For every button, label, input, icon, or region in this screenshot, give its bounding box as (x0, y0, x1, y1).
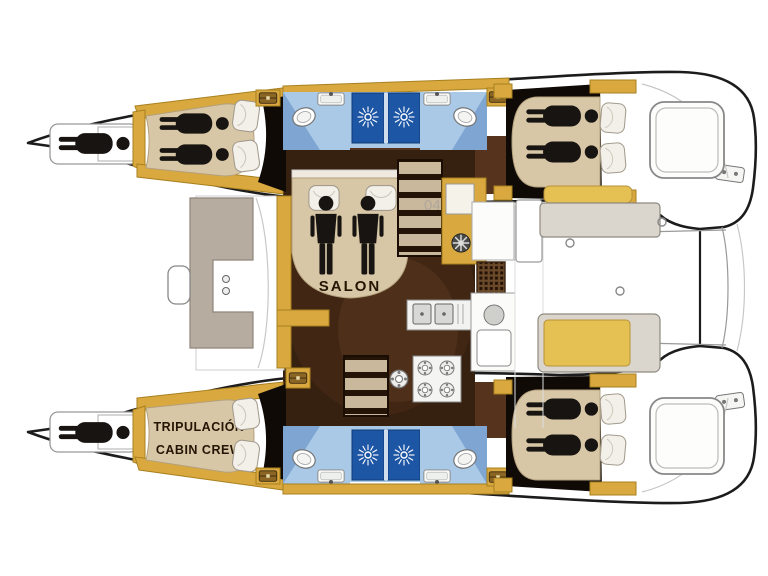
bench-cushion-fwd (544, 186, 632, 203)
galley-counter-top (446, 184, 474, 214)
deck-ring (566, 239, 574, 247)
crew-cabin-label-line2: CABIN CREW (156, 443, 242, 457)
watermark: 04 (424, 197, 441, 214)
bench-cushion-aft (544, 320, 630, 366)
companionway-stairs-port (344, 356, 388, 416)
shower-divider (384, 93, 388, 143)
cabin-trim (494, 380, 512, 394)
fridge (477, 330, 511, 366)
bath-trim (283, 484, 509, 494)
cabin-trim (133, 110, 145, 172)
burner-icon (418, 383, 432, 397)
cabin-trim (494, 186, 512, 200)
cabin-trim (494, 478, 512, 492)
bow-berth-starboard (50, 124, 138, 164)
galley-furniture (472, 202, 514, 260)
salon-label: SALON (319, 278, 382, 295)
cabin-trim (590, 80, 636, 93)
transom-line (722, 227, 728, 348)
stern-hatch (650, 102, 724, 178)
shower-left (352, 430, 384, 480)
foredeck-cockpit (168, 196, 284, 370)
burner-icon (440, 383, 454, 397)
catamaran-floorplan: TRIPULACIÓN CABIN CREW (0, 0, 768, 576)
cockpit (538, 186, 666, 372)
chest-locker-icon (259, 471, 277, 482)
faucet (329, 480, 333, 484)
pillow (232, 139, 261, 172)
burner-icon (418, 361, 432, 375)
cockpit-bench-fwd (540, 203, 660, 237)
faucet (329, 92, 333, 96)
round-basin (484, 305, 504, 325)
deck-ring (616, 287, 624, 295)
salon-wall-trim (277, 196, 291, 368)
cabin-trim (590, 482, 636, 495)
pillow (600, 393, 627, 424)
shower-right (388, 430, 420, 480)
sliding-door (516, 200, 542, 262)
pillow (600, 434, 627, 465)
faucet (435, 480, 439, 484)
stern-hatch (650, 398, 724, 474)
chest-locker-icon (289, 373, 307, 384)
bow-locker (168, 266, 190, 304)
bathrooms-starboard (283, 78, 509, 150)
cabin-trim (590, 374, 636, 387)
winch-wheel-icon (452, 234, 470, 252)
pillow (600, 142, 627, 173)
shower-right (388, 93, 420, 143)
bathrooms-port (283, 426, 509, 494)
shower-divider (384, 430, 388, 480)
floorplan-drawing: TRIPULACIÓN CABIN CREW (0, 0, 768, 576)
hatch-handle (223, 288, 230, 295)
chest-locker-icon (259, 93, 277, 104)
cabin-trim (494, 84, 512, 98)
salon-wall-trim (277, 310, 329, 326)
crew-cabin-label-line1: TRIPULACIÓN (154, 419, 245, 434)
hatch-handle (223, 276, 230, 283)
pillow (600, 102, 627, 133)
pillow (232, 397, 261, 430)
faucet (435, 92, 439, 96)
bow-berth-port (50, 412, 138, 452)
oven-dial-icon (390, 370, 408, 388)
drain (442, 312, 446, 316)
shower-left (352, 93, 384, 143)
burner-icon (440, 361, 454, 375)
drain (420, 312, 424, 316)
transom-line-outer (737, 224, 745, 351)
